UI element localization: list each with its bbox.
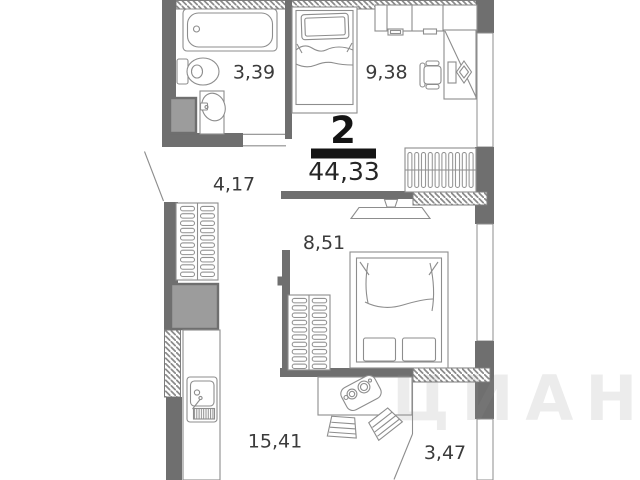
wall-right-mid1 — [475, 147, 494, 224]
area-label-bedroom: 9,38 — [365, 62, 407, 84]
rooms-count: 2 — [330, 109, 356, 152]
desk — [444, 30, 476, 99]
washbasin — [198, 90, 229, 134]
area-label-balcony: 3,47 — [424, 442, 466, 464]
washing-machine — [170, 98, 196, 133]
area-label-bedroom-second: 8,51 — [303, 232, 345, 254]
double-bed — [350, 252, 448, 368]
wall-bathroom-bedroom — [285, 0, 292, 139]
toilet — [177, 58, 219, 85]
balcony-door-swing — [394, 434, 413, 480]
wall-room2-top — [281, 191, 413, 199]
wall-left-kitchen — [166, 397, 182, 480]
wardrobe-handle — [424, 29, 437, 34]
total-area: 44,33 — [308, 157, 380, 186]
plan-summary: 2 44,33 — [308, 109, 380, 186]
wall-right-top — [476, 0, 494, 33]
floor-plan: ЦИАН 3,39 9,38 4,17 8,51 15,41 3,47 2 44… — [0, 0, 640, 480]
entrance-door — [145, 152, 164, 202]
bathtub — [183, 9, 277, 51]
pillow — [403, 338, 436, 361]
area-label-hallway: 4,17 — [213, 174, 255, 196]
window-bedroom — [477, 33, 493, 147]
area-label-kitchen-living: 15,41 — [248, 431, 302, 453]
closet — [288, 295, 330, 370]
bedroom — [292, 5, 477, 113]
wall-room2-top-hatched — [413, 192, 487, 205]
hall-cabinet — [171, 284, 218, 329]
floor-plan-page: ЦИАН 3,39 9,38 4,17 8,51 15,41 3,47 2 44… — [0, 0, 640, 480]
window-living — [477, 224, 493, 341]
wall-bathroom-bottom — [162, 133, 243, 147]
kitchen-sink — [187, 377, 217, 422]
radiator — [405, 148, 476, 192]
area-label-bathroom: 3,39 — [233, 62, 275, 84]
watermark: ЦИАН — [392, 362, 640, 435]
wall-room2-door-stop — [278, 277, 284, 286]
dining-chair — [327, 416, 357, 438]
wall-left-hatched — [165, 330, 181, 397]
desk-chair — [420, 61, 441, 89]
hallway — [145, 152, 219, 330]
pillow — [364, 338, 396, 361]
monitor — [448, 62, 456, 83]
single-bed — [292, 7, 357, 113]
hall-wardrobe — [176, 203, 218, 280]
